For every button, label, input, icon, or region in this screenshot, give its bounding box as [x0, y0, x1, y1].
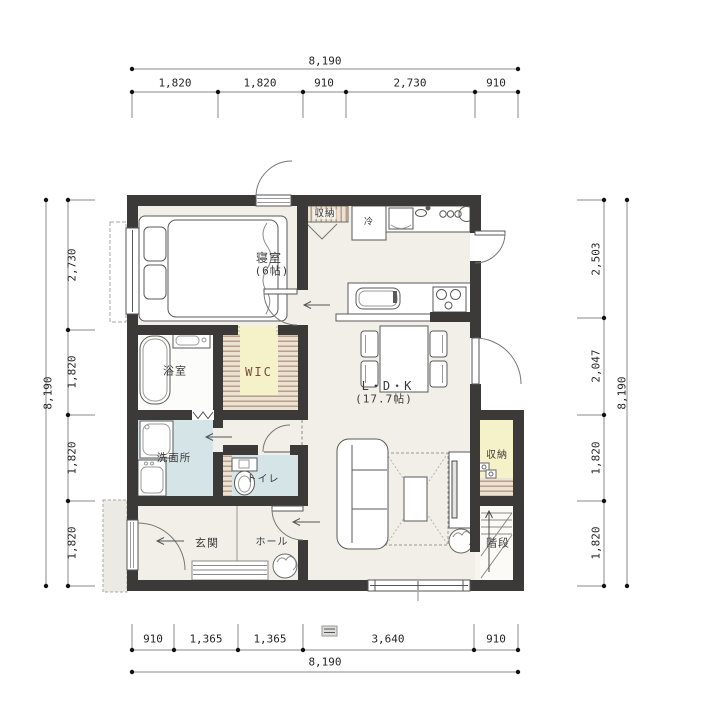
dim-left-0: 2,730: [67, 248, 78, 281]
dim-left-2: 1,820: [67, 441, 78, 474]
dim-bottom-3: 3,640: [371, 634, 404, 645]
dim-bottom-1: 1,365: [189, 634, 222, 645]
room-label-storage-right: 収納: [486, 451, 508, 461]
room-label-stairs: 階段: [486, 538, 510, 549]
room-size-ldk: (17.7帖): [355, 394, 413, 405]
dim-bottom-4: 910: [486, 634, 506, 645]
dim-right-1: 2,047: [591, 349, 602, 382]
counter-ledge: [336, 314, 431, 321]
porch: [103, 500, 127, 592]
room-label-ldk: L・D・K: [362, 380, 413, 392]
top-exterior-door: [256, 161, 292, 206]
vanity-sink: [138, 460, 166, 496]
dim-right-total: 8,190: [617, 376, 628, 409]
dim-top-3: 2,730: [393, 78, 426, 89]
right-exterior-door-upper: [470, 231, 505, 263]
toilet-shelf: [223, 455, 232, 496]
dim-left-total: 8,190: [43, 376, 54, 409]
dim-bottom-2: 1,365: [253, 634, 286, 645]
dim-right-2: 1,820: [591, 441, 602, 474]
wic-doorway: [238, 326, 278, 335]
dim-top-4: 910: [486, 78, 506, 89]
mini-marker-icon: [322, 626, 337, 636]
dim-left-1: 1,820: [67, 355, 78, 388]
right-exterior-door-lower: [470, 338, 521, 384]
room-label-toilet: トイレ: [247, 475, 280, 485]
dim-top-total: 8,190: [308, 56, 341, 67]
pillow: [144, 265, 166, 299]
dim-top-2: 910: [314, 78, 334, 89]
chair: [430, 331, 447, 357]
dim-bottom-0: 910: [143, 634, 163, 645]
room-label-washroom: 洗面所: [157, 453, 192, 464]
dim-bottom-total: 8,190: [308, 657, 341, 668]
dim-right-3: 1,820: [591, 526, 602, 559]
chair: [430, 361, 447, 387]
window-eaves: [110, 222, 126, 322]
ldk-window: [368, 580, 470, 601]
dim-top-0: 1,820: [158, 78, 191, 89]
bedroom-window: [126, 228, 139, 314]
pillow: [144, 227, 166, 261]
room-label-wic: WIC: [245, 366, 273, 378]
room-label-hall: ホール: [256, 538, 289, 548]
room-label-bathroom: 浴室: [163, 366, 187, 377]
sofa: [337, 439, 388, 549]
dim-left-3: 1,820: [67, 526, 78, 559]
fridge-label: 冷: [364, 219, 374, 228]
room-label-genkan: 玄関: [195, 538, 219, 549]
room-size-bedroom: (6帖): [255, 266, 290, 277]
coffee-table: [404, 477, 427, 521]
room-label-storage-top: 収納: [313, 209, 336, 219]
bathroom-folding-door: [192, 410, 214, 420]
floor-plan: 寝室 (6帖) 浴室 WIC 洗面所 トイレ 玄関 ホール L・D・K (17.…: [0, 0, 707, 725]
dim-right-0: 2,503: [591, 242, 602, 275]
tv: [452, 461, 457, 518]
dim-top-1: 1,820: [243, 78, 276, 89]
chair: [361, 331, 378, 357]
room-label-bedroom: 寝室: [256, 252, 282, 264]
